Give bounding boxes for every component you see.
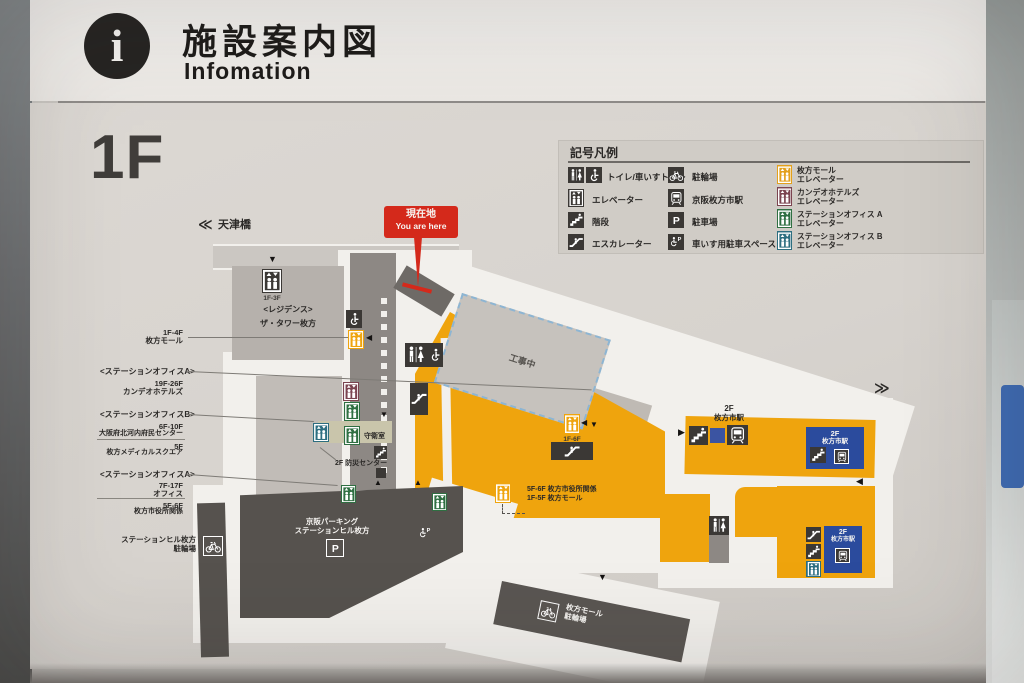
sign-header	[30, 0, 986, 101]
cityhall-note-line2: 1F-5F 枚方モール	[527, 495, 583, 503]
train-icon	[834, 449, 849, 464]
svg-text:P: P	[673, 216, 680, 227]
label-separator	[97, 498, 185, 499]
medical-name: 枚方メディカルスクエア	[80, 449, 183, 457]
elevator-icon	[262, 269, 282, 293]
escalator-icon	[410, 383, 428, 415]
disaster-center-label: 2F 防災センター	[335, 460, 387, 468]
wheelchair-parking-icon: P	[668, 234, 684, 250]
office-a-elevator-icon	[344, 402, 360, 421]
legend-label: カンデオホテルズ	[797, 188, 859, 197]
chevrons-left-icon: ≪	[198, 216, 213, 233]
station-box-name: 枚方市駅	[806, 438, 864, 446]
legend-divider	[568, 161, 970, 163]
window-reflection	[992, 300, 1024, 683]
office-a-elevator-icon	[341, 485, 356, 503]
toilet-icon	[709, 516, 729, 535]
train-icon	[727, 425, 748, 445]
escalator-icon	[806, 527, 821, 542]
office-b-elevator-icon	[313, 423, 329, 442]
hotel-name: カンデオホテルズ	[100, 387, 183, 396]
wheelchair-icon	[586, 167, 602, 183]
arrow-right-icon: ▶	[678, 428, 685, 437]
wheelchair-icon	[427, 343, 443, 367]
toilet-icon	[405, 343, 427, 367]
svg-text:P: P	[332, 544, 339, 555]
board-bottom-shadow	[30, 663, 986, 683]
parking-icon: P	[326, 539, 344, 557]
marker-tail	[414, 237, 422, 287]
arrow-left-icon: ◀	[581, 419, 587, 427]
legend-label: 駐車場	[692, 216, 718, 228]
arrow-down-icon: ▼	[380, 411, 388, 419]
nav-left-label: 天津橋	[218, 219, 251, 232]
hotel-elevator-icon	[343, 382, 359, 401]
stairs-icon	[689, 426, 708, 445]
station-label-name: 枚方市駅	[700, 413, 758, 422]
construction-label: 工事中	[508, 352, 537, 370]
legend-label: エレベーター	[797, 197, 844, 206]
stairs-icon	[568, 212, 584, 228]
bicycle-icon	[203, 536, 223, 556]
arrow-down-icon: ▼	[590, 421, 598, 429]
arrow-left-icon: ◀	[366, 334, 372, 342]
sign-title-english: Infomation	[184, 58, 312, 85]
central-walkway	[350, 253, 396, 490]
train-icon	[835, 548, 850, 563]
office-a-elevator-icon	[432, 493, 447, 511]
hill-bicycle-label-line2: 駐輪場	[96, 544, 196, 553]
legend-label: エレベーター	[797, 175, 844, 184]
office-a-title: <ステーションオフィスA>	[100, 367, 183, 377]
legend-label: 車いす用駐車スペース	[692, 238, 776, 250]
residence-name-line1: <レジデンス>	[240, 305, 336, 315]
parking-name-line2: ステーションヒル枚方	[252, 526, 412, 535]
arrow-up-icon: ▲	[374, 479, 382, 487]
legend-title: 記号凡例	[570, 144, 618, 161]
info-icon: i	[84, 13, 150, 79]
parking-icon: P	[668, 212, 684, 228]
stairs-icon	[374, 446, 387, 459]
you-are-here-en: You are here	[384, 221, 458, 231]
office-b-elevator-icon	[806, 561, 821, 577]
photo-left-edge	[0, 0, 32, 683]
legend-label: 京阪枚方市駅	[692, 194, 743, 206]
legend-label: エレベーター	[797, 219, 844, 228]
office-b-tenant: 大阪府北河内府民センター	[80, 430, 183, 438]
note-connector	[502, 504, 525, 514]
residence-elevator-floors: 1F-3F	[254, 295, 290, 303]
label-separator	[97, 439, 185, 440]
mall-elevator-icon	[564, 414, 580, 434]
legend-label: ステーションオフィス B	[797, 232, 882, 241]
legend-label: エレベーター	[592, 194, 643, 206]
office-a-elevator-icon	[344, 426, 360, 445]
arrow-left-icon: ◀	[856, 477, 863, 486]
station-blue-square	[710, 428, 725, 443]
arrow-down-icon: ▼	[598, 573, 607, 582]
bicycle-icon	[668, 167, 684, 183]
station-box-name: 枚方市駅	[824, 537, 862, 544]
stairs-icon	[806, 544, 821, 559]
cityhall-name: 枚方市役所関係	[100, 508, 183, 516]
you-are-here-ja: 現在地	[384, 209, 458, 221]
mall-block	[660, 494, 710, 562]
train-icon	[668, 189, 684, 207]
background-blue-object	[1001, 385, 1024, 488]
hill-bicycle-label-line1: ステーションヒル枚方	[96, 535, 196, 544]
escalator-icon	[568, 234, 584, 250]
wheelchair-elevator-icon	[346, 310, 362, 328]
toilet-icon	[568, 167, 584, 183]
elevator-icon	[568, 189, 584, 207]
office-b-title: <ステーションオフィスB>	[100, 410, 183, 420]
office-a-elevator-icon	[777, 209, 792, 228]
small-structure	[376, 468, 386, 478]
mall-elevator-icon	[348, 330, 364, 349]
hotel-elevator-icon	[777, 187, 792, 206]
guard-room-label: 守衛室	[364, 433, 385, 441]
toilet-block	[405, 343, 443, 367]
legend-label: 駐輪場	[692, 171, 718, 183]
facility-sign-photo: i 施設案内図 Infomation 1F 記号凡例 トイレ/車いすトイレ エレ…	[0, 0, 1024, 683]
office-name: オフィス	[100, 489, 183, 498]
residence-name-line2: ザ・タワー枚方	[237, 319, 339, 329]
parking-name-line1: 京阪パーキング	[252, 517, 412, 526]
svg-text:P: P	[426, 527, 430, 533]
bicycle-icon	[537, 600, 559, 622]
svg-text:P: P	[677, 236, 681, 242]
bicycle-parking-strip	[197, 503, 229, 658]
stairs-icon	[810, 447, 826, 463]
legend-label: 階段	[592, 216, 609, 228]
floor-label: 1F	[90, 122, 164, 193]
station-office-building	[256, 376, 342, 510]
arrow-down-icon: ▼	[268, 255, 277, 264]
escalator-icon	[551, 442, 593, 460]
mall-elevator-icon	[777, 165, 792, 184]
header-divider	[58, 101, 985, 103]
legend-label: エスカレーター	[592, 238, 652, 250]
mall-name-label: 枚方モール	[100, 336, 183, 345]
mall-elevator-icon	[495, 483, 511, 503]
walkway-stub	[709, 535, 729, 563]
office-a2-title: <ステーションオフィスA>	[100, 470, 183, 480]
mall-block	[735, 487, 777, 537]
arrow-up-icon: ▲	[414, 479, 422, 487]
legend-label: エレベーター	[797, 241, 844, 250]
legend-label: 枚方モール	[797, 166, 836, 175]
leader-line	[188, 337, 348, 338]
wheelchair-parking-icon: P	[417, 525, 433, 541]
cityhall-note-line1: 5F-6F 枚方市役所関係	[527, 486, 597, 494]
station-box-floor: 2F	[806, 429, 864, 438]
legend-label: ステーションオフィス A	[797, 210, 882, 219]
office-b-elevator-icon	[777, 231, 792, 250]
